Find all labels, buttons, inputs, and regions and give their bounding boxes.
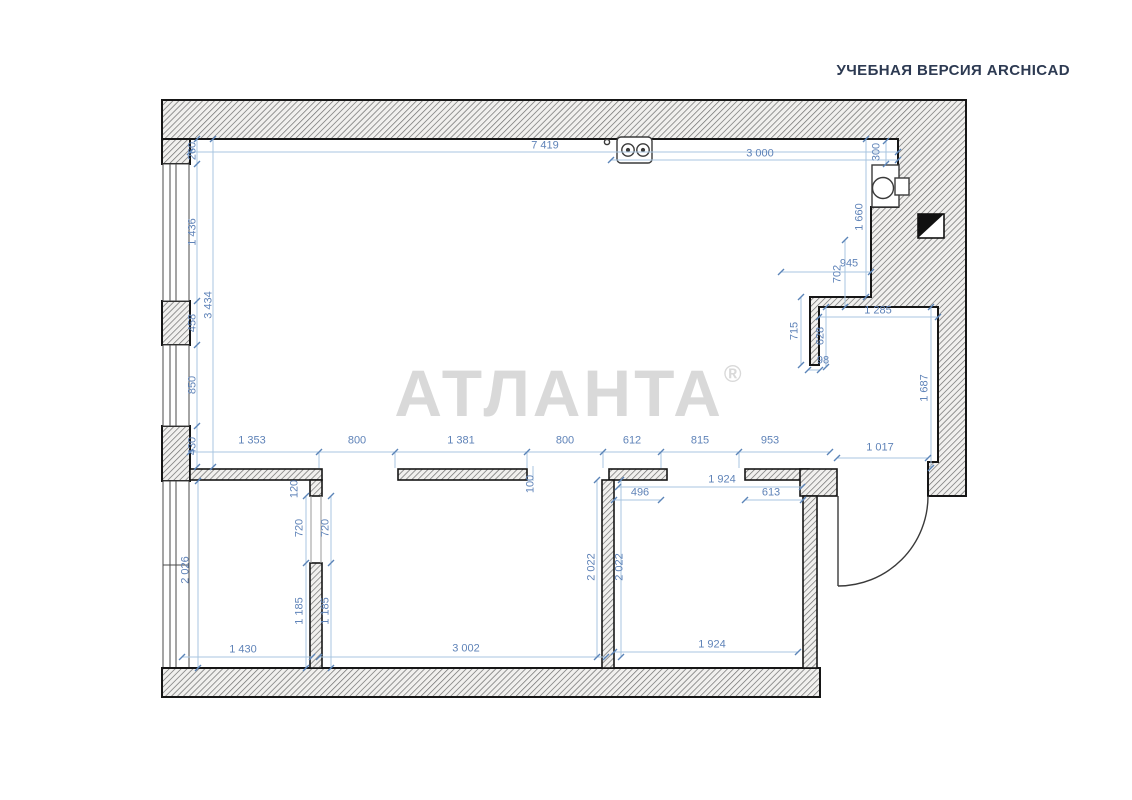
dim-1924-top: 1 924 (708, 475, 736, 486)
dim-613: 613 (762, 488, 780, 499)
dim-720-right: 720 (321, 519, 332, 537)
dim-3002: 3 002 (452, 644, 480, 655)
dim-1017: 1 017 (866, 443, 894, 454)
dim-1687: 1 687 (920, 374, 931, 402)
partition-wall-b (602, 480, 614, 668)
dim-300: 300 (872, 143, 883, 161)
watermark-text: АТЛАНТА (394, 356, 724, 430)
registered-mark-icon: ® (724, 361, 742, 388)
dim-1924-bottom: 1 924 (698, 640, 726, 651)
dim-120: 120 (290, 480, 301, 498)
partition-wall-a (310, 480, 322, 668)
floorplan-canvas: АТЛАНТА® УЧЕБНАЯ ВЕРСИЯ ARCHICAD 7 419 3… (0, 0, 1132, 800)
dim-800a: 800 (348, 436, 366, 447)
dim-1430: 1 430 (229, 645, 257, 656)
dim-98: 98 (817, 356, 829, 367)
dim-260: 260 (188, 142, 199, 160)
dim-458: 458 (188, 314, 199, 332)
dim-2022-right: 2 022 (615, 553, 626, 581)
bottom-wall (162, 668, 820, 697)
dim-100: 100 (526, 475, 537, 493)
dim-1353: 1 353 (238, 436, 266, 447)
dim-1660: 1 660 (855, 203, 866, 231)
left-wall-windows (163, 164, 189, 668)
dim-720-left: 720 (295, 519, 306, 537)
educational-version-label: УЧЕБНАЯ ВЕРСИЯ ARCHICAD (837, 62, 1071, 79)
dim-1185-right: 1 185 (321, 597, 332, 625)
dim-430: 430 (188, 437, 199, 455)
dim-702: 702 (833, 265, 844, 283)
dim-1185-left: 1 185 (295, 597, 306, 625)
dim-1381: 1 381 (447, 436, 475, 447)
dim-715: 715 (790, 322, 801, 340)
partition-wall-c (803, 496, 817, 668)
dim-612: 612 (623, 436, 641, 447)
entry-door-arc (838, 496, 928, 586)
dim-953: 953 (761, 436, 779, 447)
dim-850: 850 (188, 376, 199, 394)
dim-1436: 1 436 (188, 218, 199, 246)
dim-800b: 800 (556, 436, 574, 447)
dim-7419: 7 419 (531, 141, 559, 152)
dim-3434: 3 434 (204, 291, 215, 319)
dim-496: 496 (631, 488, 649, 499)
dim-3000: 3 000 (746, 149, 774, 160)
section-marker-icon (918, 214, 944, 238)
dim-2022-left: 2 022 (587, 553, 598, 581)
watermark: АТЛАНТА® (368, 360, 768, 426)
dim-1285: 1 285 (864, 306, 892, 317)
corridor-wall (190, 469, 837, 496)
dim-2026: 2 026 (181, 556, 192, 584)
dim-628: 628 (816, 327, 827, 345)
dim-815: 815 (691, 436, 709, 447)
